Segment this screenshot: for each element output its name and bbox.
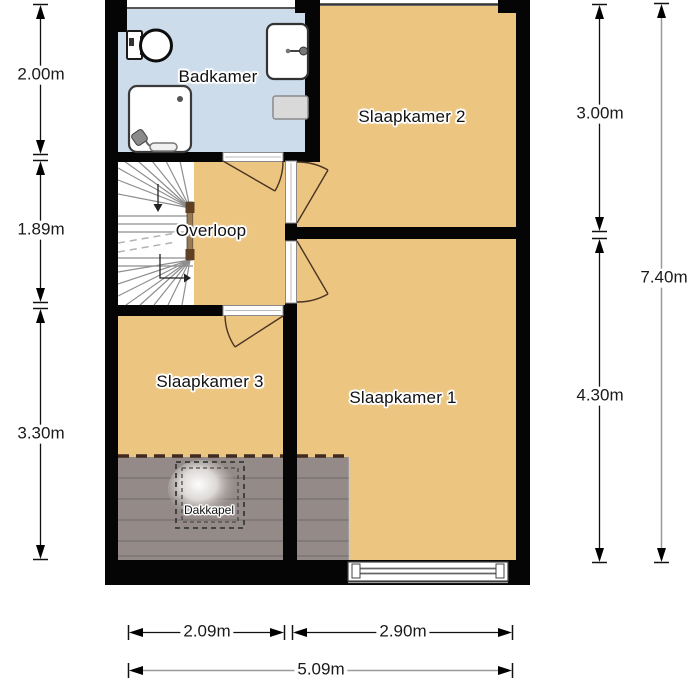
shower-icon (129, 86, 191, 152)
wall-sk3-sk1 (283, 305, 297, 585)
wall-sk2-sk1 (285, 227, 530, 239)
dim-left-3: 3.30m (14, 425, 67, 444)
wall-badkamer-south-left (118, 152, 223, 162)
dim-bottom-total: 5.09m (294, 661, 347, 680)
sink-icon (267, 24, 308, 79)
dim-bottom-2: 2.90m (376, 623, 429, 642)
toilet-icon (127, 30, 172, 61)
dim-bottom-1: 2.09m (180, 623, 233, 642)
room-label-slaapkamer2: Slaapkamer 2 (358, 107, 465, 127)
room-label-slaapkamer3: Slaapkamer 3 (156, 372, 263, 392)
wall-badkamer-sk2 (305, 0, 320, 162)
slaapkamer1-roof-slope (297, 457, 350, 562)
rail-post-bottom (186, 249, 195, 260)
dim-left-2: 1.89m (14, 221, 67, 240)
wall-overloop-sk3 (118, 305, 223, 316)
dim-right-total: 7.40m (637, 269, 690, 288)
shower-drain (177, 96, 183, 102)
wall-pier-topleft (105, 0, 127, 32)
room-label-badkamer: Badkamer (178, 67, 257, 87)
window-bottom-sk1 (348, 562, 508, 583)
wall-right (516, 0, 530, 585)
radiator-icon (273, 96, 308, 119)
dim-right-1: 3.00m (573, 105, 626, 124)
wall-left (105, 0, 118, 585)
room-label-overloop: Overloop (176, 221, 247, 241)
room-label-slaapkamer1: Slaapkamer 1 (349, 388, 456, 408)
rail-post-top (186, 202, 195, 213)
wall-pier-topright (498, 0, 530, 13)
floorplan-page: Badkamer Slaapkamer 2 Overloop Slaapkame… (0, 0, 700, 700)
dim-left-1: 2.00m (14, 66, 67, 85)
room-label-dakkapel: Dakkapel (184, 503, 234, 517)
dim-right-2: 4.30m (573, 387, 626, 406)
